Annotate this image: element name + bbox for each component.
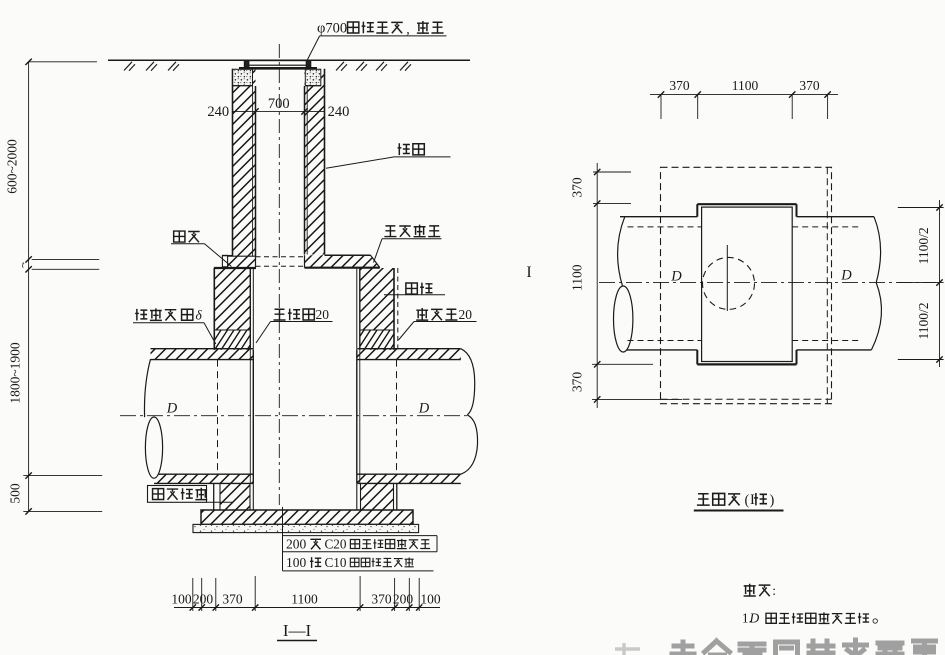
svg-text:200: 200 (286, 537, 307, 552)
svg-text:100: 100 (286, 555, 307, 570)
svg-text:D: D (670, 269, 682, 285)
svg-text:240: 240 (328, 104, 350, 120)
svg-text:200: 200 (193, 592, 214, 607)
svg-text:600~2000: 600~2000 (5, 139, 20, 194)
svg-text:1800~1900: 1800~1900 (8, 342, 23, 404)
svg-text:1100/2: 1100/2 (916, 303, 931, 340)
svg-text:D: D (840, 268, 852, 284)
svg-text:20: 20 (316, 307, 330, 322)
svg-text:): ) (770, 492, 775, 508)
svg-text:I—I: I—I (283, 621, 312, 640)
svg-text:200: 200 (393, 592, 414, 607)
svg-text:370: 370 (669, 78, 690, 93)
svg-text:370: 370 (222, 592, 243, 607)
svg-text:I: I (750, 492, 755, 508)
svg-text:500: 500 (8, 483, 23, 504)
svg-text:100: 100 (420, 592, 441, 607)
svg-text:,: , (406, 23, 410, 38)
svg-text:C10: C10 (325, 555, 347, 570)
svg-text:370: 370 (570, 372, 585, 393)
svg-text:D: D (418, 401, 430, 417)
svg-text::: : (772, 583, 776, 598)
svg-text:1100: 1100 (291, 592, 318, 607)
svg-text:D: D (166, 401, 178, 417)
svg-text:1100: 1100 (570, 264, 585, 291)
svg-text:1100: 1100 (732, 78, 759, 93)
svg-text:700: 700 (268, 96, 290, 112)
svg-text:C20: C20 (325, 537, 347, 552)
svg-text:370: 370 (570, 177, 585, 198)
svg-text:(: ( (745, 492, 750, 508)
svg-text:D: D (749, 611, 760, 626)
svg-text:240: 240 (207, 104, 229, 120)
svg-text:φ700: φ700 (317, 21, 347, 37)
svg-text:20: 20 (459, 307, 473, 322)
svg-text:370: 370 (371, 592, 392, 607)
svg-text:I: I (526, 264, 531, 281)
svg-text:370: 370 (799, 78, 820, 93)
svg-text:100: 100 (171, 592, 192, 607)
svg-text:1100/2: 1100/2 (916, 227, 931, 264)
svg-text:δ: δ (196, 308, 203, 323)
